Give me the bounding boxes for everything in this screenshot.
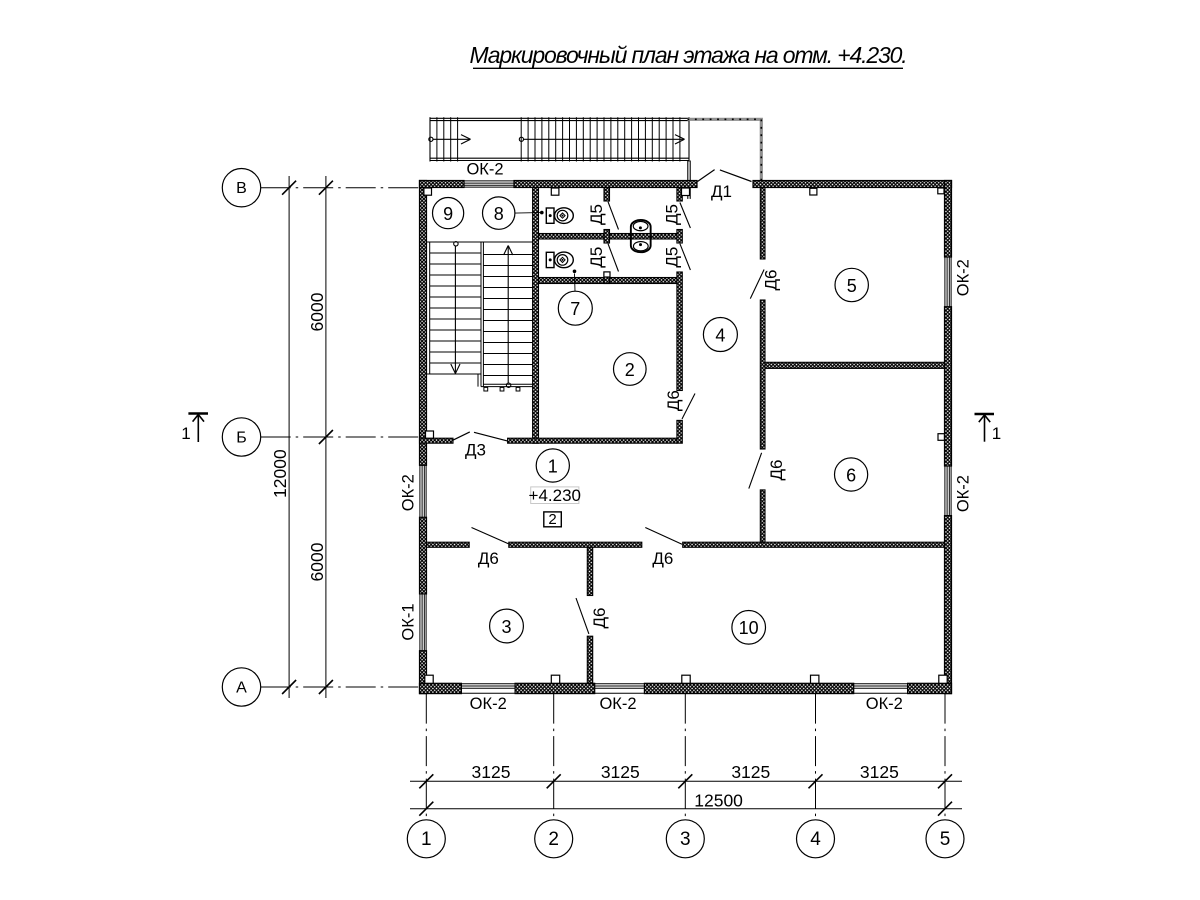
- svg-text:Д6: Д6: [590, 608, 609, 629]
- svg-text:Д5: Д5: [587, 204, 606, 225]
- svg-text:Б: Б: [236, 429, 247, 446]
- svg-text:Д5: Д5: [663, 247, 682, 268]
- svg-text:5: 5: [847, 276, 857, 296]
- svg-text:Д6: Д6: [652, 549, 673, 568]
- svg-text:12000: 12000: [270, 449, 290, 498]
- svg-text:ОК-2: ОК-2: [599, 695, 636, 713]
- svg-text:3125: 3125: [860, 762, 899, 782]
- svg-text:ОК-2: ОК-2: [470, 695, 507, 713]
- svg-text:2: 2: [625, 360, 635, 380]
- svg-text:3125: 3125: [731, 762, 770, 782]
- svg-text:+4.230: +4.230: [529, 486, 581, 505]
- svg-text:Д6: Д6: [478, 549, 499, 568]
- svg-text:ОК-2: ОК-2: [866, 695, 903, 713]
- svg-text:3: 3: [680, 829, 691, 850]
- svg-text:Маркировочный план этажа на от: Маркировочный план этажа на отм. +4.230.: [469, 42, 906, 68]
- svg-text:1: 1: [421, 829, 432, 850]
- svg-text:12500: 12500: [694, 791, 743, 811]
- svg-text:1: 1: [992, 424, 1001, 443]
- svg-text:9: 9: [443, 204, 453, 224]
- svg-text:3125: 3125: [472, 762, 511, 782]
- svg-text:ОК-2: ОК-2: [400, 474, 418, 511]
- svg-text:2: 2: [548, 829, 559, 850]
- svg-text:2: 2: [548, 511, 556, 528]
- svg-text:Д5: Д5: [587, 247, 606, 268]
- svg-text:ОК-2: ОК-2: [466, 160, 503, 178]
- svg-text:Д5: Д5: [663, 204, 682, 225]
- svg-text:1: 1: [548, 456, 558, 476]
- svg-text:ОК-1: ОК-1: [400, 603, 418, 640]
- svg-text:4: 4: [715, 325, 725, 345]
- svg-text:Д6: Д6: [767, 460, 786, 481]
- svg-text:5: 5: [940, 829, 951, 850]
- svg-text:6000: 6000: [307, 292, 327, 331]
- svg-text:1: 1: [181, 424, 190, 443]
- svg-text:ОК-2: ОК-2: [954, 259, 972, 296]
- svg-text:Д3: Д3: [465, 441, 486, 460]
- svg-text:А: А: [236, 679, 247, 696]
- svg-text:3: 3: [501, 617, 511, 637]
- svg-text:4: 4: [810, 829, 821, 850]
- svg-text:В: В: [236, 180, 247, 197]
- svg-text:6: 6: [846, 465, 856, 485]
- svg-text:Д6: Д6: [664, 390, 683, 411]
- svg-text:8: 8: [494, 204, 504, 224]
- svg-text:Д1: Д1: [711, 182, 732, 201]
- svg-text:7: 7: [570, 299, 580, 319]
- svg-text:10: 10: [739, 618, 759, 638]
- svg-text:6000: 6000: [307, 542, 327, 581]
- svg-text:Д6: Д6: [762, 270, 781, 291]
- svg-text:3125: 3125: [601, 762, 640, 782]
- svg-text:ОК-2: ОК-2: [954, 475, 972, 512]
